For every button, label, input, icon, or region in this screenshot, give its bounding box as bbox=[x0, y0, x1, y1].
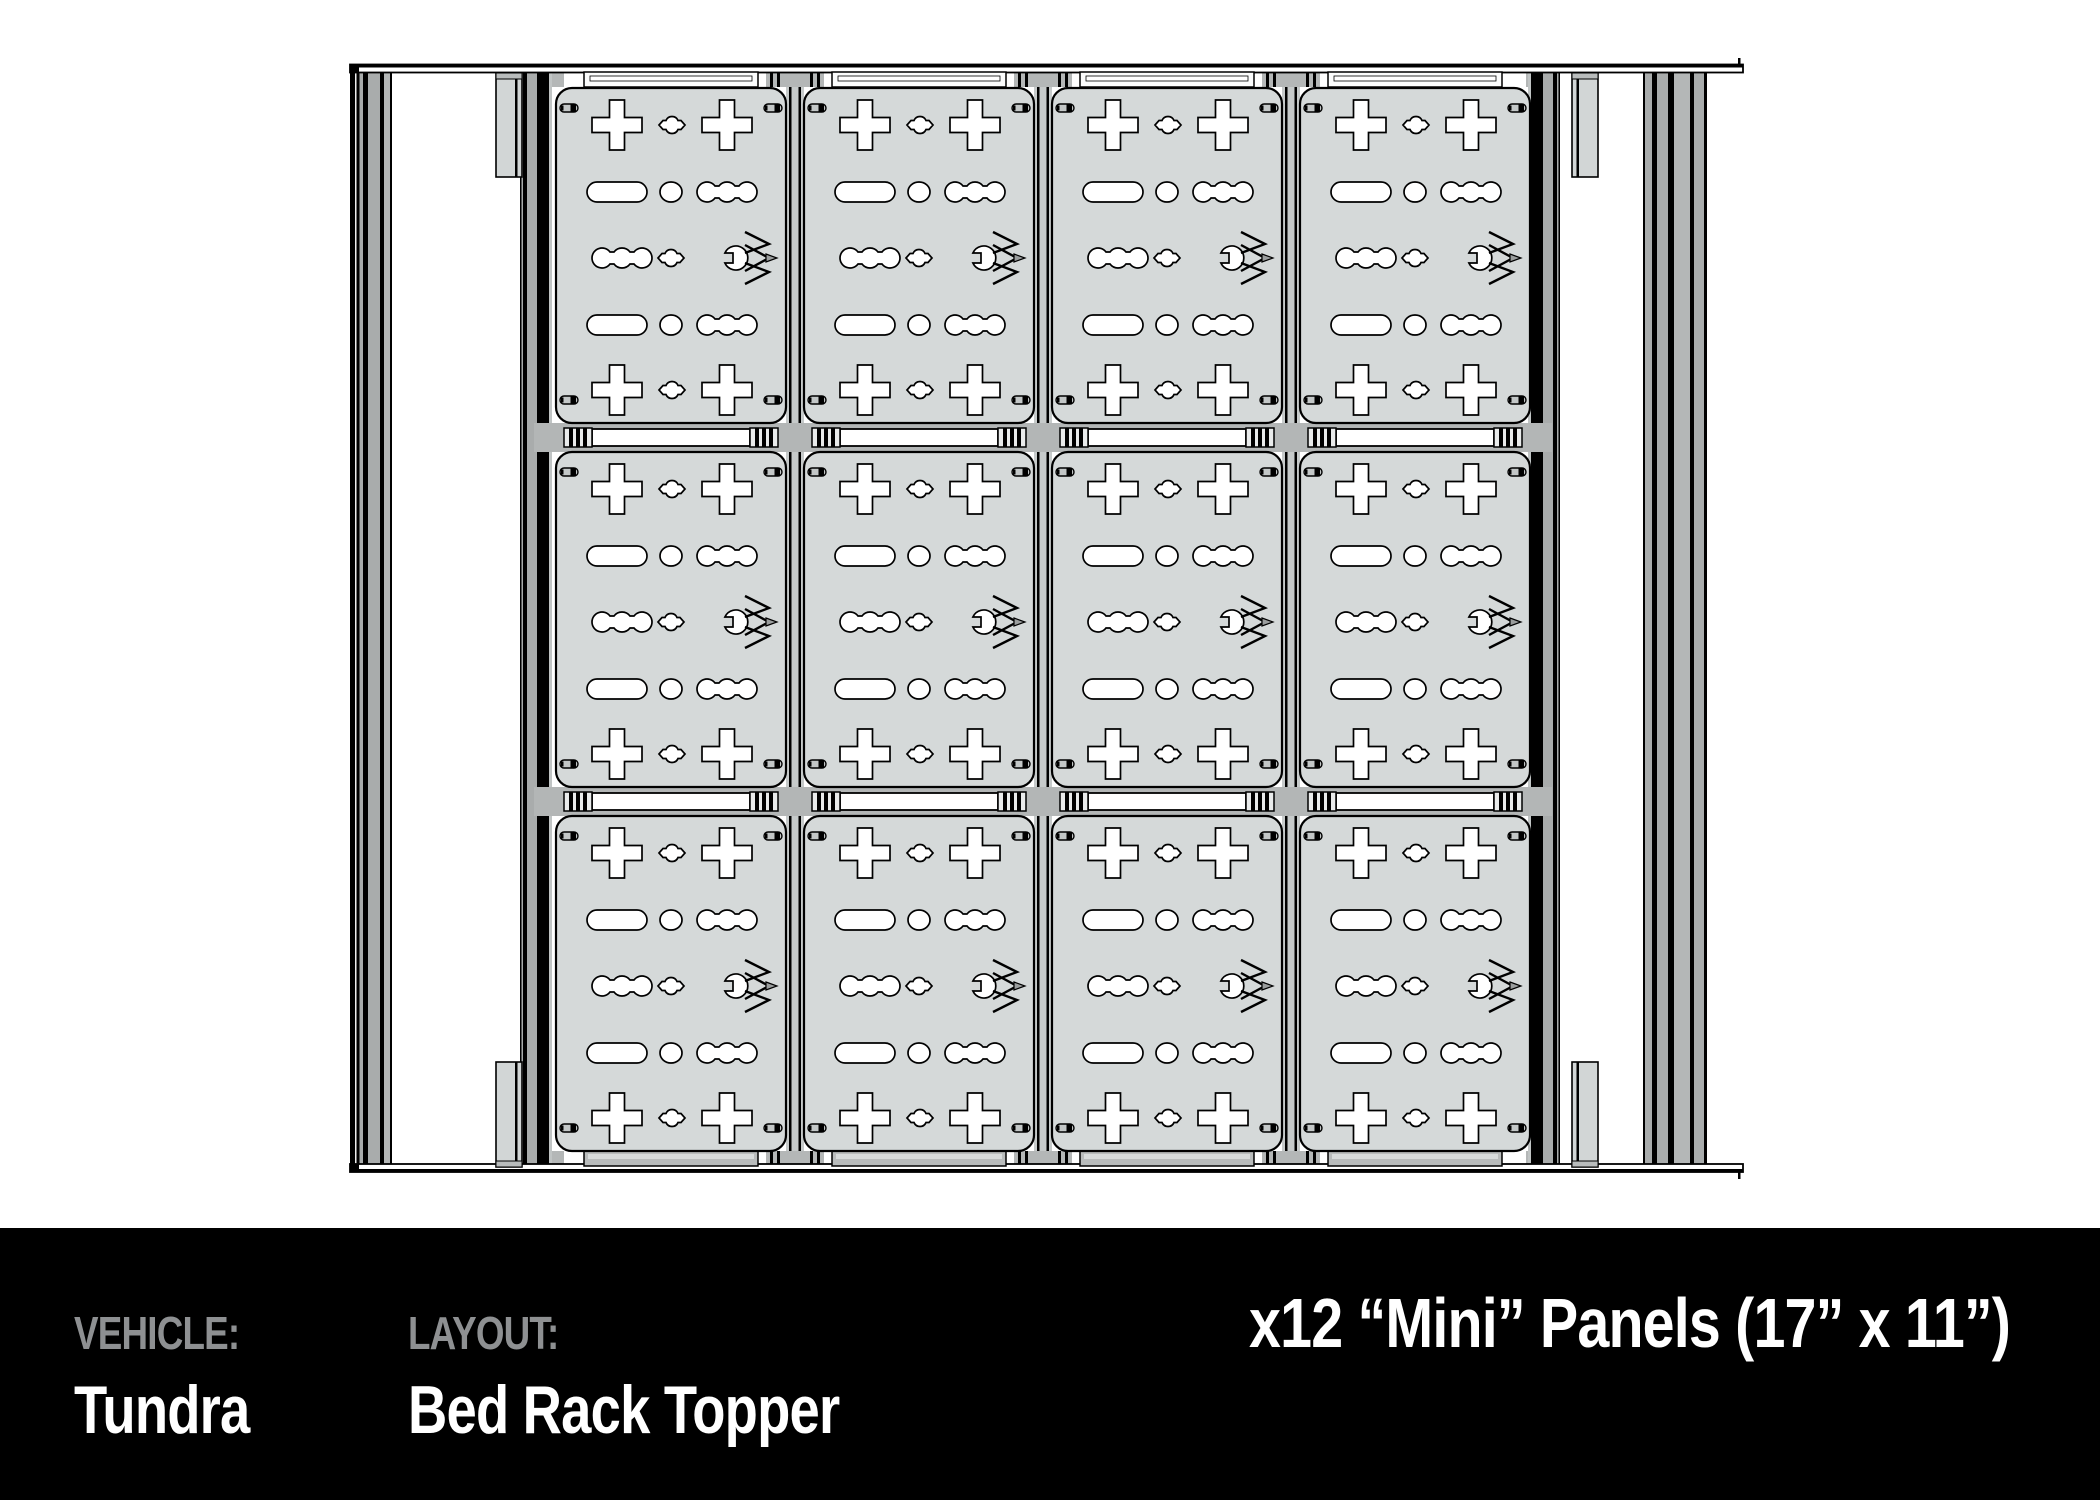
mini-panel-r1-c1 bbox=[556, 88, 786, 423]
cross-bar bbox=[782, 423, 1056, 452]
vehicle-block: VEHICLE: Tundra bbox=[74, 1228, 394, 1500]
mini-panel-r1-c2 bbox=[804, 88, 1034, 423]
mini-panel-r2-c4 bbox=[1300, 452, 1530, 787]
footer-bar: VEHICLE: Tundra LAYOUT: Bed Rack Topper … bbox=[0, 1228, 2100, 1500]
mini-panel-r3-c1 bbox=[556, 816, 786, 1151]
cross-bar bbox=[1030, 787, 1304, 816]
mini-panel-r1-c4 bbox=[1300, 88, 1530, 423]
page: VEHICLE: Tundra LAYOUT: Bed Rack Topper … bbox=[0, 0, 2100, 1500]
right-inner-rail bbox=[1528, 66, 1560, 1170]
cross-bar bbox=[1278, 423, 1552, 452]
bracket-bottom-right bbox=[1572, 1062, 1598, 1167]
mini-panel-r2-c2 bbox=[804, 452, 1034, 787]
left-outer-rail bbox=[350, 66, 392, 1170]
vehicle-value: Tundra bbox=[74, 1376, 250, 1444]
cross-bar bbox=[1278, 787, 1552, 816]
cross-bar bbox=[1030, 423, 1304, 452]
mini-panel-r2-c1 bbox=[556, 452, 786, 787]
bracket-bottom-left bbox=[496, 1062, 522, 1167]
rack-diagram bbox=[0, 0, 2100, 1228]
mini-panel-r3-c3 bbox=[1052, 816, 1282, 1151]
mini-panel-r3-c4 bbox=[1300, 816, 1530, 1151]
bracket-top-right bbox=[1572, 73, 1598, 177]
cross-bar bbox=[534, 787, 808, 816]
mini-panel-r1-c3 bbox=[1052, 88, 1282, 423]
layout-block: LAYOUT: Bed Rack Topper bbox=[408, 1228, 1008, 1500]
layout-label: LAYOUT: bbox=[408, 1310, 558, 1356]
mini-panel-r2-c3 bbox=[1052, 452, 1282, 787]
mini-panel-r3-c2 bbox=[804, 816, 1034, 1151]
vehicle-label: VEHICLE: bbox=[74, 1310, 239, 1356]
right-outer-rail bbox=[1643, 66, 1707, 1170]
left-inner-rail bbox=[520, 66, 552, 1170]
layout-value: Bed Rack Topper bbox=[408, 1376, 839, 1444]
cross-bar bbox=[534, 423, 808, 452]
cross-bar bbox=[782, 787, 1056, 816]
panel-count-title: x12 “Mini” Panels (17” x 11”) bbox=[1249, 1288, 2010, 1358]
bracket-top-left bbox=[496, 73, 522, 177]
